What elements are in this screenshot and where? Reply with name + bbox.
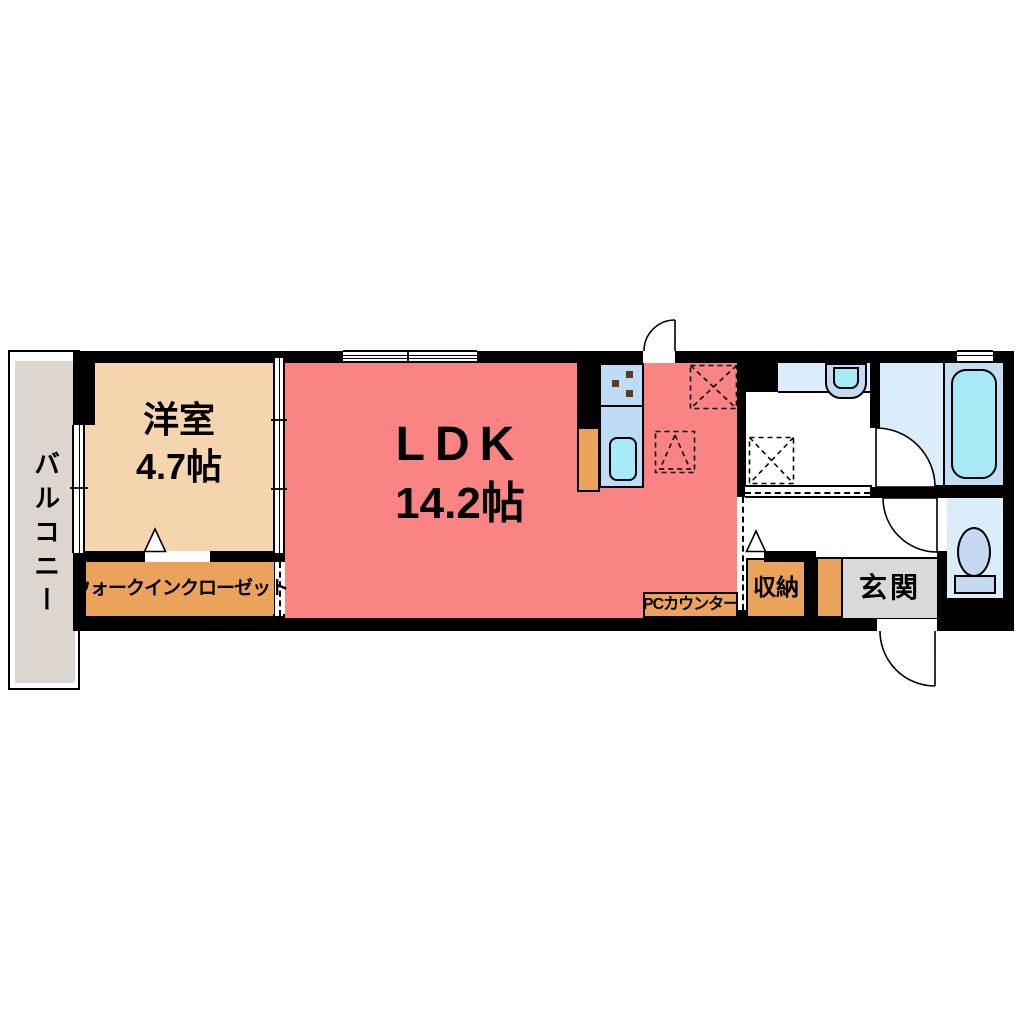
storage-text: 収納 — [753, 574, 799, 602]
storage-label: 収納 — [746, 558, 806, 618]
ldk-size: 14.2帖 — [290, 475, 630, 533]
storage-opening-marker — [747, 531, 766, 552]
ldk-label: LDK 14.2帖 — [290, 415, 630, 533]
refrigerator-space-icon — [691, 366, 737, 409]
ldk-name: LDK — [290, 415, 630, 475]
bedroom-size: 4.7帖 — [85, 443, 273, 490]
bedroom-opening-marker — [145, 529, 166, 552]
wic-text: ウォークインクローゼット — [72, 578, 288, 601]
range-hood-space-icon — [656, 432, 695, 473]
bedroom-name: 洋室 — [85, 396, 273, 443]
bathroom-door-icon — [876, 428, 935, 487]
entrance-door-icon — [880, 631, 935, 686]
wic-label: ウォークインクローゼット — [84, 560, 276, 618]
entrance-label: 玄関 — [843, 557, 937, 618]
toilet-door-icon — [883, 498, 937, 552]
balcony-label: バルコニー — [15, 425, 75, 645]
entrance-text: 玄関 — [859, 571, 921, 605]
floor-plan: PCカウンター — [0, 0, 1020, 1020]
kitchen-service-door-icon — [644, 320, 675, 351]
washing-machine-space-icon — [750, 438, 794, 484]
bedroom-label: 洋室 4.7帖 — [85, 396, 273, 490]
